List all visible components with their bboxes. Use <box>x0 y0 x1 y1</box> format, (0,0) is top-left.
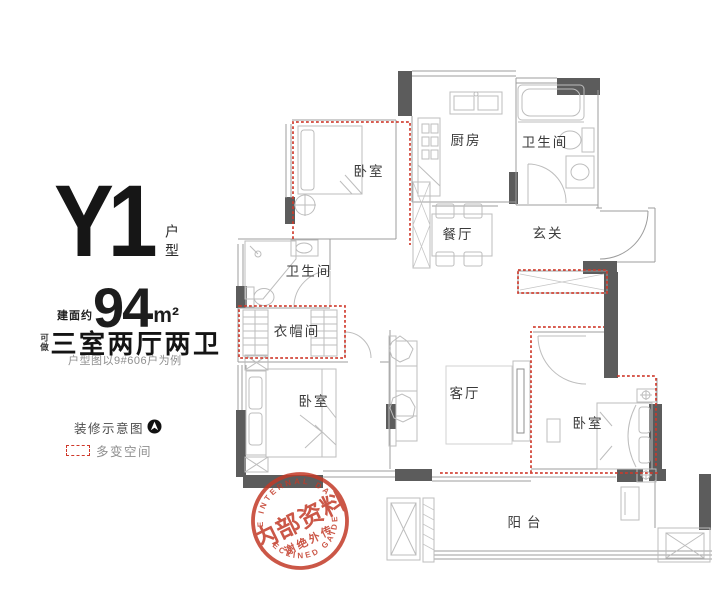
floorplan-svg: 卧室 厨房 卫生间 餐厅 玄关 卫生间 衣帽间 卧室 客厅 卧室 阳台 内部资料… <box>0 0 721 600</box>
label-balcony: 阳台 <box>508 515 547 530</box>
bed-left-bedroom <box>245 355 336 472</box>
foyer-closet-lines <box>520 274 604 290</box>
label-bedroom-top: 卧室 <box>354 163 385 179</box>
label-foyer: 玄关 <box>533 225 564 241</box>
label-living: 客厅 <box>450 385 481 401</box>
label-dining: 餐厅 <box>443 227 474 242</box>
duct-shaft <box>413 182 430 268</box>
label-bath-top: 卫生间 <box>522 135 569 150</box>
label-bedroom-left: 卧室 <box>299 393 330 409</box>
label-bedroom-right: 卧室 <box>573 415 604 431</box>
floorplan-page: Y1 户型 建面约 94 m² 可做 三室两厅两卫 户型图以9#606户为例 装… <box>0 0 721 600</box>
label-kitchen: 厨房 <box>451 133 482 148</box>
label-cloakroom: 衣帽间 <box>274 324 321 339</box>
label-bath-mid: 卫生间 <box>286 264 333 279</box>
bed-top-bedroom <box>294 126 362 216</box>
bed-right-bedroom <box>538 336 656 482</box>
